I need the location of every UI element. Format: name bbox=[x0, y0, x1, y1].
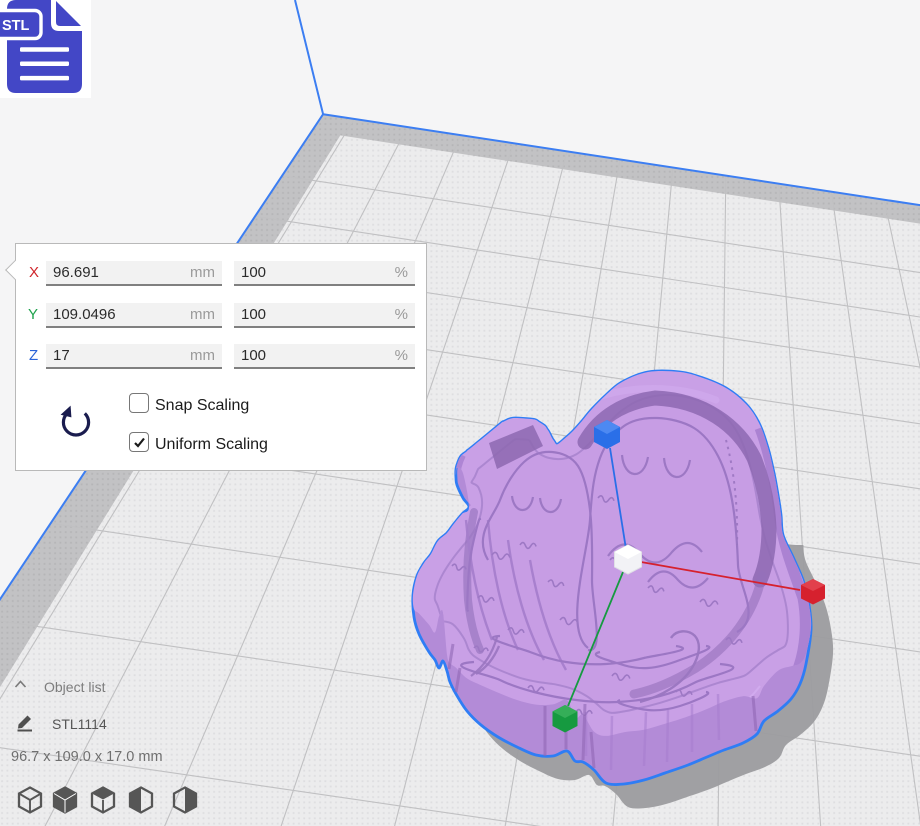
svg-text:STL: STL bbox=[2, 18, 30, 34]
